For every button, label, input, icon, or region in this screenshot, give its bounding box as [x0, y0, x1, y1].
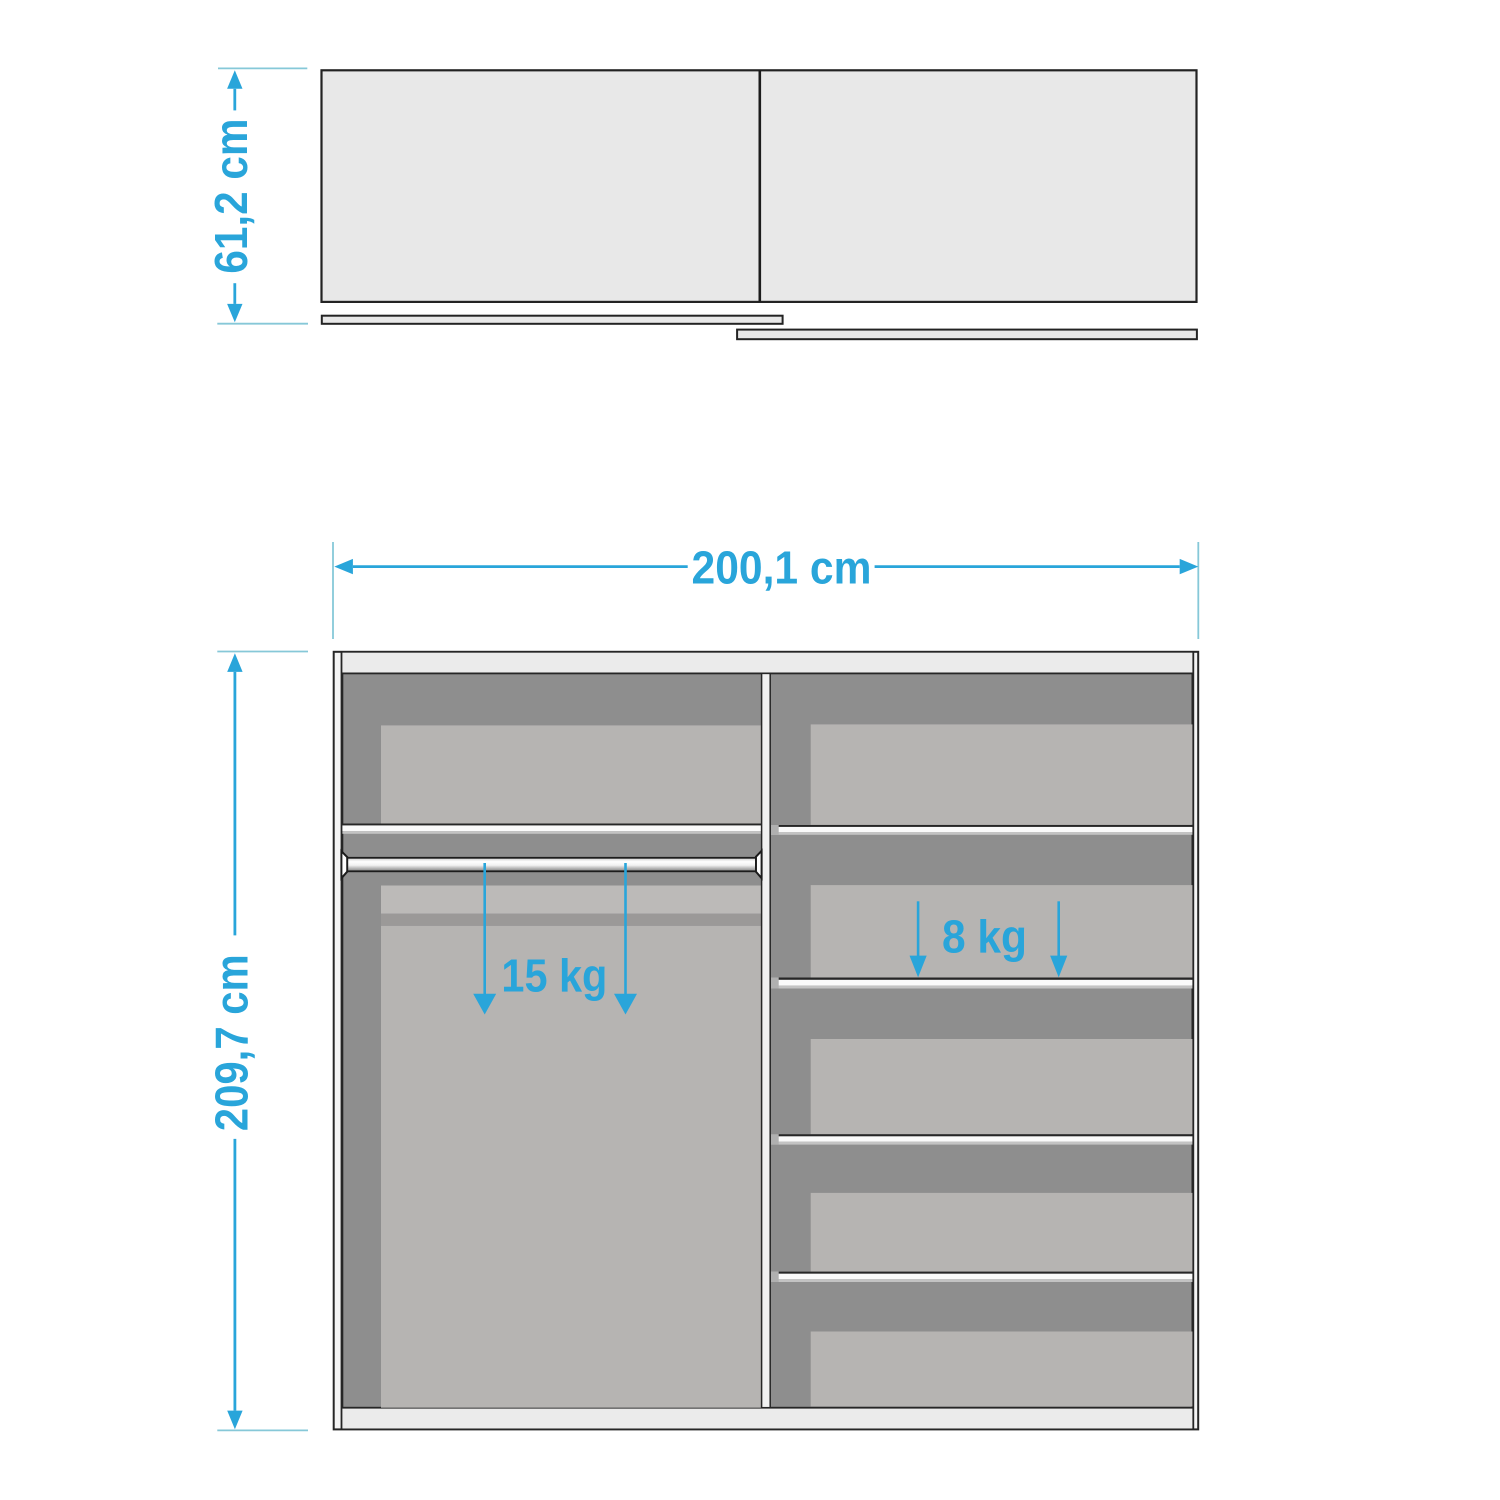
svg-text:209,7 cm: 209,7 cm — [206, 954, 258, 1131]
svg-text:61,2 cm: 61,2 cm — [205, 119, 257, 274]
svg-text:15 kg: 15 kg — [501, 950, 607, 1002]
svg-text:200,1 cm: 200,1 cm — [692, 541, 872, 593]
svg-text:8 kg: 8 kg — [942, 911, 1027, 963]
